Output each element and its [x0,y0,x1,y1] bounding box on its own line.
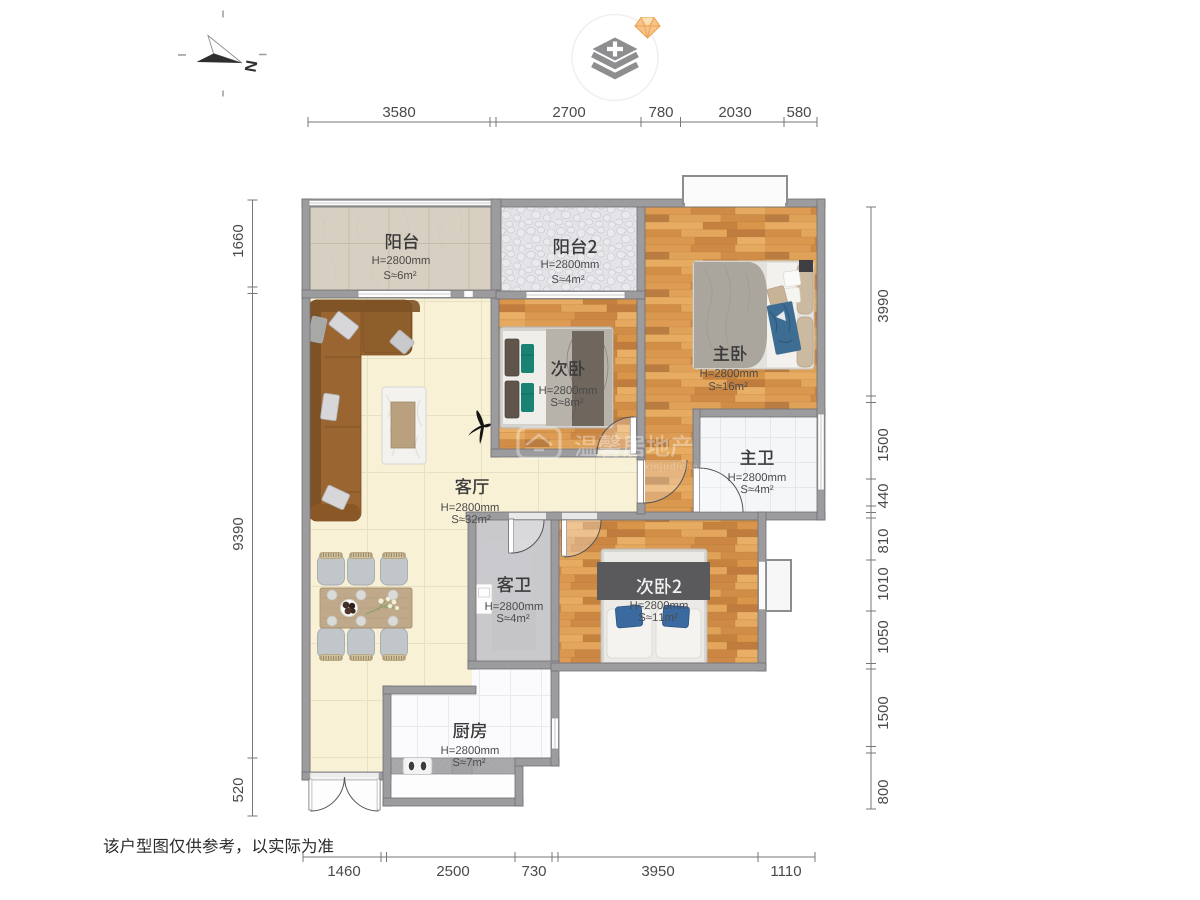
svg-text:1050: 1050 [875,620,892,653]
svg-text:810: 810 [875,528,892,553]
svg-text:800: 800 [875,779,892,804]
svg-text:3990: 3990 [875,289,892,322]
svg-text:520: 520 [230,777,247,802]
svg-text:780: 780 [648,104,673,121]
svg-text:1500: 1500 [875,428,892,461]
svg-text:580: 580 [786,104,811,121]
svg-text:3950: 3950 [641,863,674,880]
svg-text:2030: 2030 [718,104,751,121]
svg-text:3580: 3580 [382,104,415,121]
svg-text:2500: 2500 [436,863,469,880]
svg-text:1660: 1660 [230,224,247,257]
svg-text:2700: 2700 [552,104,585,121]
svg-text:1460: 1460 [327,863,360,880]
svg-text:9390: 9390 [230,517,247,550]
svg-text:730: 730 [521,863,546,880]
svg-text:1010: 1010 [875,567,892,600]
svg-text:1500: 1500 [875,696,892,729]
svg-text:wenxinjudichan: wenxinjudichan [622,462,705,473]
svg-text:1110: 1110 [770,863,801,880]
svg-text:440: 440 [875,483,892,508]
